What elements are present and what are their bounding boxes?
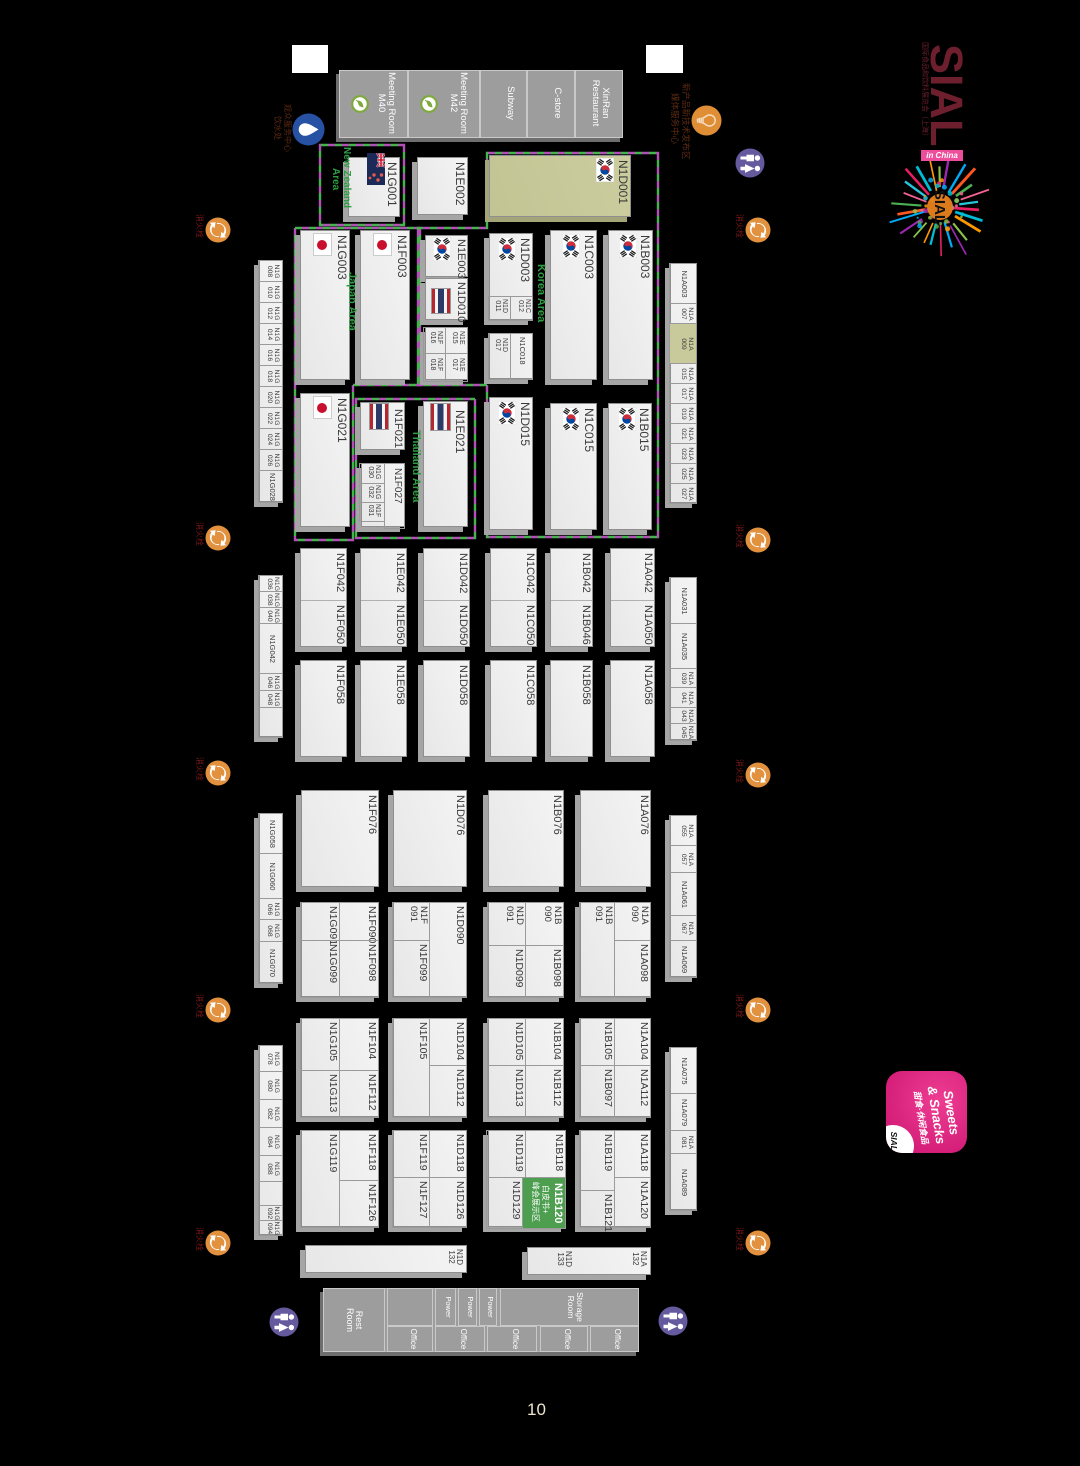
svg-text:SIAL: SIAL bbox=[931, 190, 948, 224]
